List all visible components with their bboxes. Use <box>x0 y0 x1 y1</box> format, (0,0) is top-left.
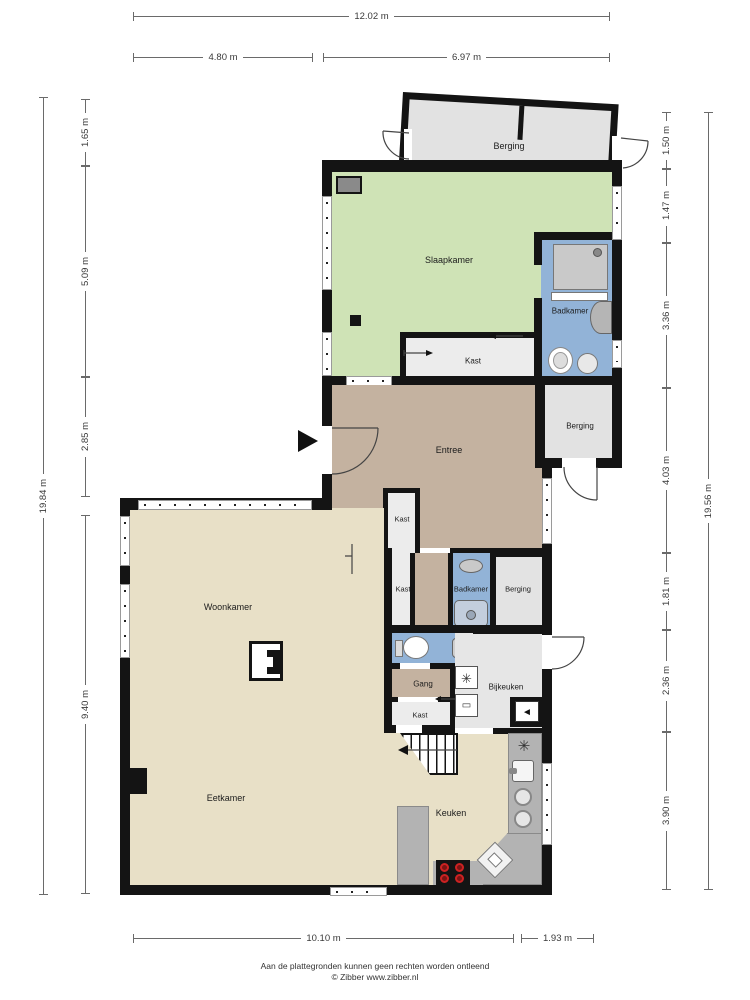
dimension-label: 9.40 m <box>80 685 91 724</box>
door-gap <box>396 725 422 733</box>
dimension-label: 2.36 m <box>661 661 672 700</box>
wall <box>534 240 542 265</box>
wall <box>495 553 542 557</box>
mech-vent-icon: ◄ <box>522 707 532 718</box>
burner <box>455 874 464 883</box>
dimension-bottom-a: 10.10 m <box>133 933 514 944</box>
extractor-icon: ✳ <box>518 738 531 755</box>
dimension-bottom-b: 1.93 m <box>521 933 594 944</box>
dimension-label: 19.56 m <box>703 479 714 523</box>
window <box>612 340 622 368</box>
window <box>138 500 312 510</box>
sink <box>459 559 483 573</box>
dimension-left-b: 5.09 m <box>80 166 91 377</box>
door-arc <box>564 467 597 500</box>
dimension-label: 6.97 m <box>447 52 486 63</box>
room-label-woonkamer: Woonkamer <box>204 602 252 612</box>
dimension-label: 1.50 m <box>661 121 672 160</box>
washing-machine-icon: ✳ <box>461 671 472 686</box>
dimension-label: 5.09 m <box>80 252 91 291</box>
room-label-kast-hal: Kast <box>395 585 410 594</box>
round-basin <box>514 810 532 828</box>
wall-berging-partition <box>517 106 524 140</box>
room-woonkamer-eetkamer <box>130 508 384 885</box>
flue-block <box>336 176 362 194</box>
room-label-kast-slaapkamer: Kast <box>465 357 481 366</box>
burner <box>440 863 449 872</box>
dimension-label: 1.47 m <box>661 186 672 225</box>
dimension-label: 10.10 m <box>301 933 345 944</box>
room-label-badkamer-top: Badkamer <box>552 307 588 316</box>
sink-tap <box>509 768 517 774</box>
toilet-seat <box>553 352 568 369</box>
round-basin <box>514 788 532 806</box>
dimension-label: 4.80 m <box>203 52 242 63</box>
dimension-label: 19.84 m <box>38 474 49 518</box>
shower-head <box>593 248 602 257</box>
room-label-keuken: Keuken <box>436 808 467 818</box>
corridor <box>412 553 450 625</box>
round-sink <box>577 353 598 374</box>
dimension-label: 1.65 m <box>80 113 91 152</box>
wall <box>473 628 542 634</box>
wall <box>448 553 453 630</box>
wall <box>410 553 415 625</box>
dimension-label: 1.81 m <box>661 572 672 611</box>
door-gap <box>562 458 596 468</box>
floorplan-canvas: 12.02 m 4.80 m 6.97 m 19.84 m 1.65 m 5.0… <box>0 0 750 1000</box>
wall <box>534 232 622 240</box>
window <box>120 584 130 658</box>
dimension-top-total: 12.02 m <box>133 11 610 22</box>
door-gap <box>322 426 332 474</box>
dimension-right-g: 3.90 m <box>661 732 672 890</box>
window <box>330 887 387 896</box>
wall <box>535 385 545 468</box>
appliance-icon: ▭ <box>462 700 471 711</box>
door-gap <box>542 635 552 669</box>
chimney-bump <box>130 768 147 794</box>
dimension-left-c: 2.85 m <box>80 377 91 497</box>
toilet-tank <box>395 640 403 657</box>
dryer: ▭ <box>455 694 478 717</box>
dimension-right-f: 2.36 m <box>661 630 672 732</box>
wall <box>534 298 542 378</box>
wall <box>490 553 496 628</box>
dimension-right-c: 3.36 m <box>661 243 672 388</box>
dimension-right-total: 19.56 m <box>703 112 714 890</box>
window <box>120 516 130 566</box>
column <box>350 315 361 326</box>
dimension-left-a: 1.65 m <box>80 99 91 166</box>
dimension-top-a: 4.80 m <box>133 52 313 63</box>
dimension-left-total: 19.84 m <box>38 97 49 895</box>
room-label-berging-mid: Berging <box>566 422 594 431</box>
door-arc <box>623 141 648 168</box>
window <box>542 763 552 845</box>
dimension-label: 2.85 m <box>80 417 91 456</box>
burner <box>440 874 449 883</box>
window <box>542 478 552 544</box>
disclaimer-text: Aan de plattegronden kunnen geen rechten… <box>0 961 750 971</box>
counter-left <box>397 806 429 885</box>
washing-machine: ✳ <box>455 666 478 689</box>
dimension-label: 4.03 m <box>661 451 672 490</box>
toilet <box>403 636 429 659</box>
dimension-right-b: 1.47 m <box>661 169 672 243</box>
door-leaf <box>621 138 648 141</box>
dimension-label: 3.90 m <box>661 791 672 830</box>
dimension-right-d: 4.03 m <box>661 388 672 553</box>
dimension-label: 1.93 m <box>538 933 577 944</box>
dimension-label: 3.36 m <box>661 296 672 335</box>
entrance-arrow-icon <box>298 430 318 452</box>
room-label-kast-entree: Kast <box>394 515 409 524</box>
window <box>612 186 622 240</box>
vent-box: ◄ <box>515 701 539 722</box>
burner <box>455 863 464 872</box>
window <box>322 332 332 376</box>
dimension-top-b: 6.97 m <box>323 52 610 63</box>
shelf <box>551 292 608 301</box>
room-label-badkamer-mid: Badkamer <box>454 585 488 594</box>
extractor: ✳ <box>514 737 534 757</box>
door-gap <box>404 129 412 160</box>
copyright-text: © Zibber www.zibber.nl <box>0 972 750 982</box>
room-label-gang: Gang <box>413 680 433 689</box>
dimension-right-e: 1.81 m <box>661 553 672 630</box>
room-label-berging-klein: Berging <box>505 585 531 594</box>
room-label-slaapkamer: Slaapkamer <box>425 255 473 265</box>
door-arc <box>552 637 584 669</box>
room-label-bijkeuken: Bijkeuken <box>489 683 524 692</box>
bath-drain <box>466 610 476 620</box>
dimension-left-d: 9.40 m <box>80 515 91 894</box>
dimension-label: 12.02 m <box>349 11 393 22</box>
window <box>322 196 332 290</box>
wall <box>384 548 392 733</box>
room-label-kast-gang: Kast <box>412 711 427 720</box>
room-label-berging-top: Berging <box>493 141 524 151</box>
room-label-entree: Entree <box>436 445 463 455</box>
dimension-right-a: 1.50 m <box>661 112 672 169</box>
opening <box>455 728 493 734</box>
room-label-eetkamer: Eetkamer <box>207 793 246 803</box>
fireplace-notch <box>267 657 273 667</box>
wall <box>612 385 622 468</box>
sink <box>590 301 612 334</box>
